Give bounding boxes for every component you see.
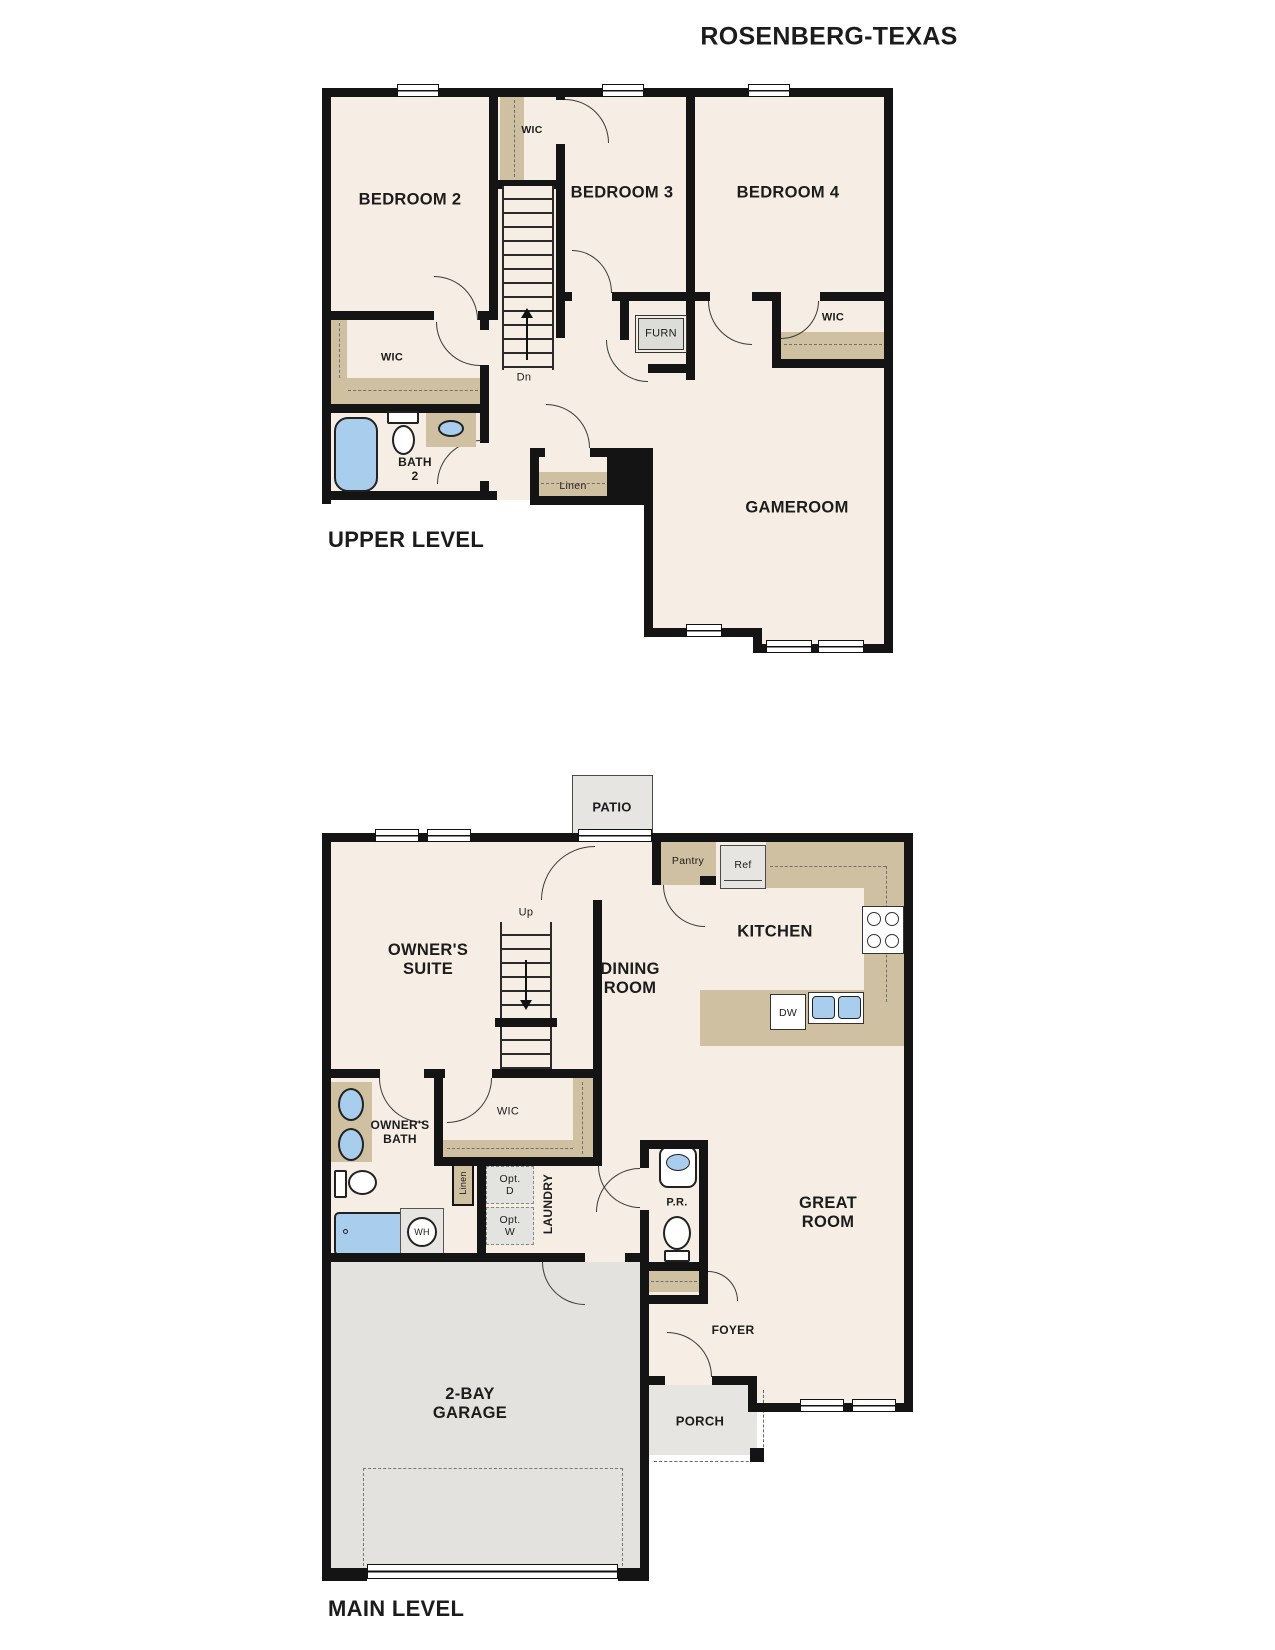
shelf-dash xyxy=(339,323,340,378)
wall xyxy=(530,496,616,505)
room-label-patio: PATIO xyxy=(592,801,631,816)
wall xyxy=(590,448,616,457)
room-label-foyer: FOYER xyxy=(712,1324,755,1338)
wall xyxy=(648,1376,665,1385)
wall xyxy=(644,1262,699,1271)
label-wic-main: WIC xyxy=(497,1106,519,1119)
wall xyxy=(884,88,893,653)
kitchen-counter-top xyxy=(766,842,904,888)
wall xyxy=(712,1376,757,1385)
label-opt-dryer: Opt. D xyxy=(499,1173,520,1197)
wall xyxy=(322,1069,380,1078)
garage-door xyxy=(367,1564,618,1579)
label-linen-main: Linen xyxy=(458,1171,468,1195)
wic-shelf-bottom xyxy=(443,1140,593,1158)
level-label-main: MAIN LEVEL xyxy=(328,1596,464,1621)
wall xyxy=(322,88,331,504)
wall xyxy=(640,1140,708,1149)
sink-icon xyxy=(438,420,464,437)
wall xyxy=(480,311,489,330)
wall xyxy=(612,292,695,301)
wall xyxy=(620,301,629,340)
sink-basin-icon xyxy=(838,996,861,1019)
room-label-bedroom-4: BEDROOM 4 xyxy=(737,184,840,203)
label-stairs-dn: Dn xyxy=(517,372,532,385)
label-dishwasher: DW xyxy=(779,1007,797,1019)
room-label-garage: 2-BAY GARAGE xyxy=(433,1385,507,1423)
upper-cutout xyxy=(328,500,644,648)
wall xyxy=(618,1568,649,1581)
bed4-wic-shelf xyxy=(781,332,884,359)
room-label-great-room: GREAT ROOM xyxy=(799,1194,857,1232)
room-label-pr: P.R. xyxy=(666,1197,687,1210)
wall xyxy=(434,1157,602,1166)
wall xyxy=(820,292,884,301)
wall xyxy=(556,144,565,338)
shelf-dash xyxy=(784,344,882,345)
room-label-laundry: LAUNDRY xyxy=(542,1174,556,1234)
wall xyxy=(904,833,913,1412)
shelf-dash xyxy=(447,1148,573,1149)
stair-wic-shelf xyxy=(500,97,524,180)
label-ref: Ref xyxy=(734,859,751,871)
floorplan-page: ROSENBERG-TEXAS xyxy=(0,0,1275,1650)
window xyxy=(397,84,439,97)
wall xyxy=(640,1140,649,1168)
wall xyxy=(652,842,661,885)
sink-icon xyxy=(666,1154,690,1171)
window xyxy=(818,640,864,653)
upper-floor-extension xyxy=(760,92,889,648)
burner-icon xyxy=(867,912,881,926)
wall xyxy=(593,900,602,1166)
room-label-gameroom: GAMEROOM xyxy=(745,499,848,518)
stairs-upper xyxy=(502,186,554,370)
bed2-wic-shelf-bottom xyxy=(347,378,480,404)
wall xyxy=(772,292,781,368)
wall xyxy=(322,1568,367,1581)
wall xyxy=(322,833,331,1581)
window xyxy=(427,829,471,842)
level-label-upper: UPPER LEVEL xyxy=(328,527,484,552)
shelf-dash xyxy=(582,1082,583,1154)
toilet-icon xyxy=(663,1216,691,1250)
toilet-icon xyxy=(392,425,415,455)
toilet-icon xyxy=(348,1170,377,1195)
label-wic-stair: WIC xyxy=(521,124,542,136)
toilet-icon xyxy=(387,411,419,424)
porch-post xyxy=(750,1448,764,1462)
cabinet-dash xyxy=(770,866,886,867)
wall xyxy=(652,833,913,842)
wall xyxy=(640,1262,649,1581)
page-title: ROSENBERG-TEXAS xyxy=(700,23,957,52)
stairs-direction-arrow xyxy=(520,1000,532,1010)
label-water-heater: WH xyxy=(414,1227,430,1237)
window xyxy=(602,84,644,97)
wall xyxy=(556,88,565,100)
wall xyxy=(565,292,572,301)
garage-apron-dash xyxy=(363,1468,623,1571)
wall xyxy=(772,359,884,368)
label-linen-upper: Linen xyxy=(559,480,586,492)
burner-icon xyxy=(885,934,899,948)
window xyxy=(852,1399,896,1412)
wall xyxy=(322,491,497,500)
tub-drain xyxy=(343,1229,348,1234)
bathtub-icon xyxy=(334,417,378,492)
wall xyxy=(492,1069,601,1078)
wall xyxy=(434,1069,443,1166)
stairs-direction-arrow xyxy=(521,308,533,318)
room-label-owners-bath: OWNER'S BATH xyxy=(371,1119,430,1147)
label-pantry: Pantry xyxy=(672,855,704,867)
wall xyxy=(686,88,695,380)
label-stairs-up: Up xyxy=(519,907,534,920)
wall xyxy=(495,1018,557,1027)
wall xyxy=(489,88,498,320)
patio-door xyxy=(578,829,652,842)
stairs-arrow-shaft xyxy=(526,318,528,360)
shelf-dash xyxy=(651,1281,697,1282)
wall xyxy=(322,311,434,320)
room-label-bath-2: BATH 2 xyxy=(398,456,432,484)
shelf-dash xyxy=(348,390,478,391)
burner-icon xyxy=(867,934,881,948)
wall xyxy=(625,1253,649,1262)
room-label-dining: DINING ROOM xyxy=(600,960,660,998)
wall xyxy=(530,448,545,457)
window xyxy=(766,640,812,653)
sink-icon xyxy=(338,1128,364,1161)
label-opt-washer: Opt. W xyxy=(499,1214,520,1238)
label-wic-bed2: WIC xyxy=(381,352,403,365)
sink-basin-icon xyxy=(812,996,835,1019)
room-label-owners-suite: OWNER'S SUITE xyxy=(388,941,468,979)
window xyxy=(800,1399,844,1412)
burner-icon xyxy=(885,912,899,926)
wall xyxy=(686,292,710,301)
refrigerator-line xyxy=(724,880,762,881)
room-label-bedroom-3: BEDROOM 3 xyxy=(571,184,674,203)
room-label-kitchen: KITCHEN xyxy=(737,923,812,942)
wall xyxy=(322,1253,585,1262)
wall xyxy=(699,1140,708,1304)
toilet-icon xyxy=(664,1250,690,1262)
wall xyxy=(644,452,653,637)
room-label-bedroom-2: BEDROOM 2 xyxy=(359,191,462,210)
wall xyxy=(700,876,716,885)
stairs-main-lower xyxy=(500,1027,552,1069)
room-label-porch: PORCH xyxy=(676,1415,724,1430)
window xyxy=(375,829,419,842)
label-wic-bed4: WIC xyxy=(822,312,844,325)
wall xyxy=(477,1157,486,1262)
label-furnace: FURN xyxy=(645,328,677,341)
toilet-icon xyxy=(334,1170,347,1198)
wall xyxy=(480,413,489,443)
window xyxy=(748,84,790,97)
window xyxy=(686,624,722,637)
stairs-arrow-shaft xyxy=(525,960,527,1002)
shelf-dash xyxy=(514,100,515,177)
sink-icon xyxy=(338,1088,364,1121)
wall xyxy=(640,1295,708,1304)
